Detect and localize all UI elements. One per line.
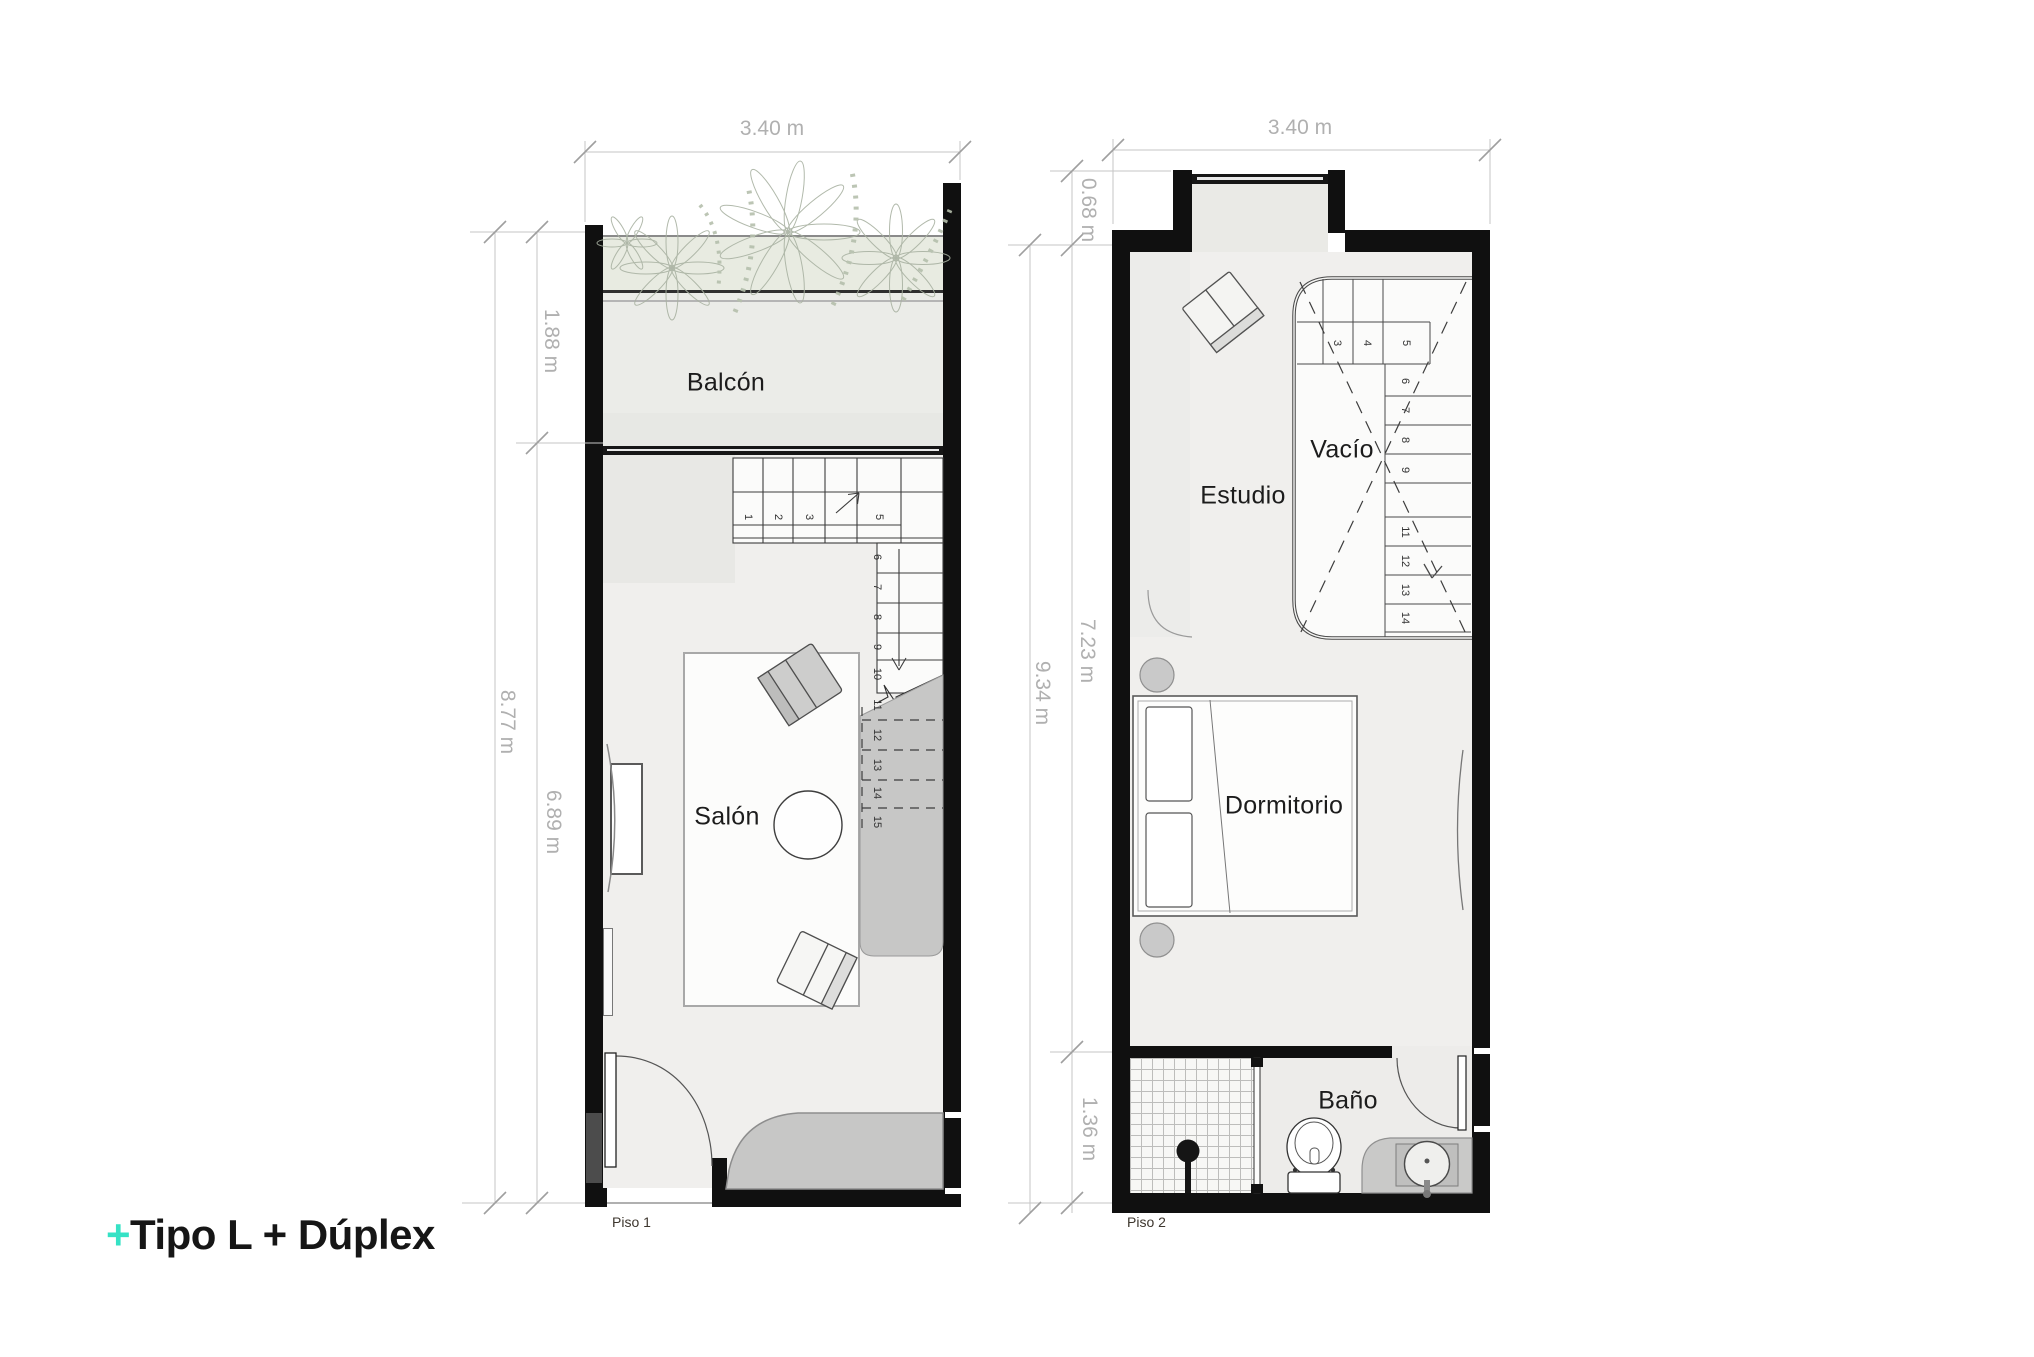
stair-number: 13 [871,759,883,771]
p1-dim-living: 6.89 m [541,790,565,854]
p2-bump-window-glass [1197,177,1323,180]
stair-number: 11 [871,699,883,710]
stair-number: 8 [1399,437,1411,443]
stair-number: 10 [871,668,883,680]
p1-dim-width: 3.40 m [740,117,804,141]
p2-dim-total: 9.34 m [1030,661,1054,725]
title-text: Tipo L + Dúplex [130,1211,435,1258]
stair-number: 5 [873,514,885,520]
p1-balcony-shade [603,413,943,447]
stair-number: 6 [871,554,883,560]
stair-number: 11 [1399,526,1411,537]
p2-bump-floor [1192,184,1328,252]
stair-number: 15 [871,816,883,828]
p1-living-shade [603,455,735,583]
stair-number: 6 [1399,378,1411,384]
stair-number: 3 [1331,340,1343,346]
p2-dim-main: 7.23 m [1075,619,1099,683]
stair-number: 12 [871,729,883,741]
p2-caption: Piso 2 [1127,1214,1166,1230]
p2-label-bedroom: Dormitorio [1225,792,1343,821]
p2-label-void: Vacío [1310,436,1374,465]
stair-number: 9 [871,644,883,650]
p1-caption: Piso 1 [612,1214,651,1230]
stair-number: 7 [871,584,883,590]
p1-planter [603,235,943,293]
stair-number: 4 [1361,340,1373,346]
p1-radiator [603,928,613,1016]
p2-bump-wall-right [1328,170,1345,233]
sheet-title: +Tipo L + Dúplex [106,1212,435,1258]
title-accent: + [106,1211,130,1258]
p2-wall-top-right [1345,230,1490,252]
floorplan-sheet: 3.40 m 1.88 m 8.77 m 6.89 m 3.40 m 0.68 … [0,0,2034,1357]
stair-number: 7 [1399,407,1411,413]
stair-number: 5 [1400,340,1412,346]
p2-wall-top-left [1112,230,1173,252]
stair-number: 14 [1399,612,1411,624]
p2-bath-wall [1128,1046,1392,1058]
p2-wall-left [1112,230,1130,1213]
p2-shower-floor [1130,1058,1254,1193]
p1-label-balcony: Balcón [687,369,765,398]
p1-wall-right [943,183,961,1207]
stair-number: 3 [803,514,815,520]
p2-study-shade [1130,252,1190,637]
stair-number: 2 [772,514,784,520]
p2-label-study: Estudio [1200,482,1286,511]
p1-label-living: Salón [694,803,759,832]
p2-wall-bottom [1112,1193,1490,1213]
p2-dim-bath: 1.36 m [1077,1097,1101,1161]
p2-dim-width: 3.40 m [1268,116,1332,140]
p1-wall-left [585,225,603,1207]
p1-dim-total: 8.77 m [495,690,519,754]
linework-layer [0,0,2034,1357]
p1-wall-bottom [727,1188,960,1207]
p1-wall-bottom-left [585,1188,607,1207]
stair-number: 1 [742,514,754,520]
stair-number: 12 [1399,555,1411,567]
p1-dim-balcony: 1.88 m [539,309,563,373]
stair-number: 13 [1399,584,1411,596]
p1-balcony-window-glass [607,449,939,451]
p1-planter-line [603,300,943,302]
stair-number: 8 [871,614,883,620]
p2-dim-top: 0.68 m [1076,178,1100,242]
p2-wall-right [1472,230,1490,1213]
stair-number: 14 [871,787,883,799]
p1-entry-cabinet [586,1113,602,1183]
p1-wall-stub [712,1158,727,1207]
p1-tv-console [610,763,643,875]
p2-bump-wall-left [1173,170,1192,252]
p2-label-bath: Baño [1318,1087,1378,1116]
stair-number: 9 [1399,467,1411,473]
